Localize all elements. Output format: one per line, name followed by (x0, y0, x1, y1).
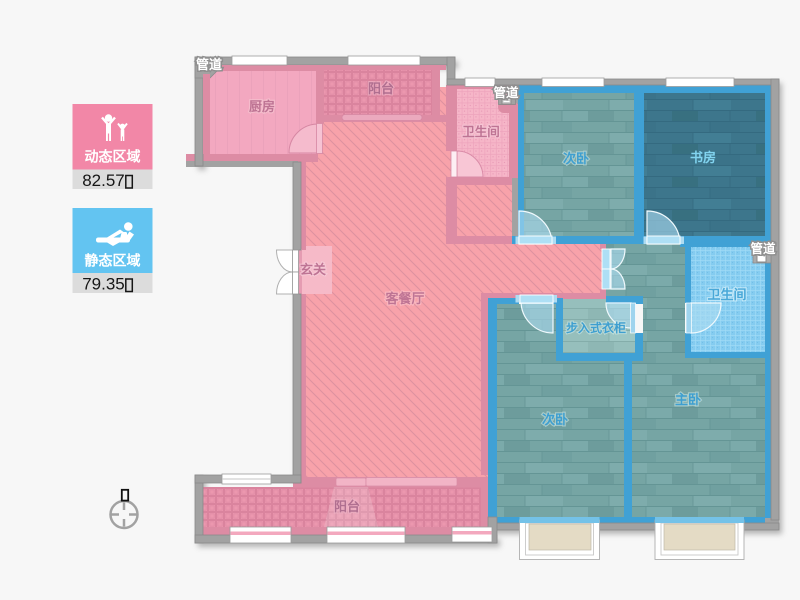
svg-text:次卧: 次卧 (542, 412, 568, 427)
svg-text:阳台: 阳台 (334, 499, 360, 514)
svg-text:次卧: 次卧 (563, 151, 589, 166)
svg-text:管道: 管道 (750, 241, 776, 256)
svg-text:厨房: 厨房 (249, 99, 275, 114)
svg-text:卫生间: 卫生间 (707, 287, 746, 302)
svg-text:静态区域: 静态区域 (85, 253, 141, 269)
svg-text:书房: 书房 (690, 150, 716, 165)
svg-text:卫生间: 卫生间 (462, 124, 500, 139)
svg-text:客餐厅: 客餐厅 (385, 291, 424, 306)
svg-text:79.35: 79.35 (82, 275, 125, 294)
svg-text:管道: 管道 (196, 57, 222, 72)
svg-text:阳台: 阳台 (368, 81, 394, 96)
svg-text:步入式衣柜: 步入式衣柜 (566, 320, 626, 335)
svg-text:82.57: 82.57 (82, 171, 125, 190)
svg-text:主卧: 主卧 (675, 392, 701, 407)
svg-text:玄关: 玄关 (300, 262, 326, 277)
svg-text:管道: 管道 (493, 85, 519, 100)
svg-text:动态区域: 动态区域 (85, 149, 141, 165)
